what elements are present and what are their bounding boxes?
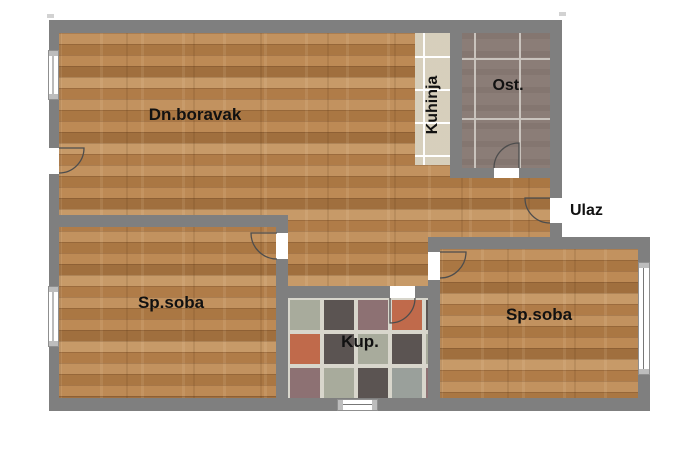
storage-floor — [462, 33, 550, 168]
door-gap-bedroom-right — [428, 252, 440, 280]
window-left-lower — [48, 286, 59, 347]
bathroom-tile — [324, 300, 354, 330]
label-living-room: Dn.boravak — [149, 105, 242, 125]
bathroom-tile — [392, 334, 422, 364]
label-storage: Ost. — [492, 77, 523, 95]
wall-kitchen-storage-divider — [450, 33, 462, 178]
bathroom-tile — [290, 300, 320, 330]
door-gap-entrance — [550, 198, 562, 223]
window-left-upper — [48, 50, 59, 100]
window-right-bedroom — [638, 262, 650, 375]
bathroom-tile — [290, 334, 320, 364]
bathroom-tile — [358, 368, 388, 398]
bathroom-tile — [392, 300, 422, 330]
label-entrance: Ulaz — [570, 202, 603, 220]
door-gap-living-entry — [49, 148, 59, 174]
corner-mark-top-right — [559, 12, 566, 16]
wall-bedroom-right-top — [428, 237, 650, 249]
label-bedroom-left: Sp.soba — [138, 293, 204, 313]
label-kitchen: Kuhinja — [424, 76, 442, 135]
floorplan: Dn.boravak Kuhinja Ost. Ulaz Sp.soba Kup… — [0, 0, 699, 459]
label-bathroom: Kup. — [341, 332, 379, 352]
bathroom-tile — [324, 368, 354, 398]
wall-living-bedroom-divider — [49, 215, 281, 227]
label-bedroom-right: Sp.soba — [506, 305, 572, 325]
wall-top — [49, 20, 562, 33]
door-gap-bedroom-left — [276, 233, 288, 259]
bathroom-tile — [392, 368, 422, 398]
door-gap-storage — [494, 168, 519, 178]
wall-bathroom-top — [288, 286, 440, 298]
corner-mark-top-left — [47, 14, 54, 18]
bathroom-tile — [358, 300, 388, 330]
bathroom-tile — [290, 368, 320, 398]
door-gap-bathroom — [390, 286, 415, 298]
window-bathroom-bottom — [337, 399, 378, 411]
